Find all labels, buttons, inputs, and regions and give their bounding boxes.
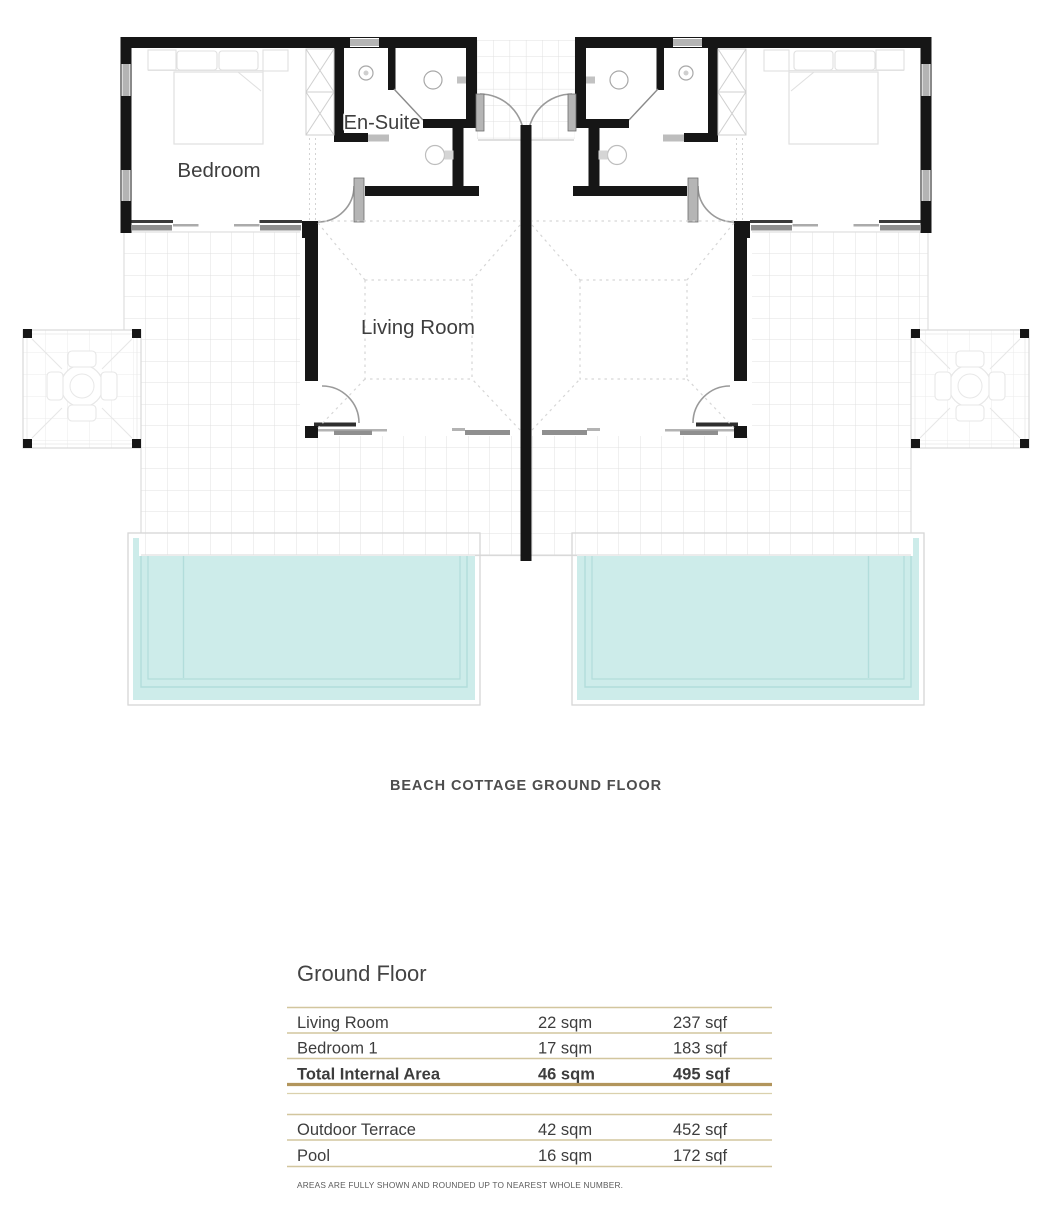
svg-text:Living Room: Living Room xyxy=(297,1014,389,1032)
svg-text:Ground Floor: Ground Floor xyxy=(297,961,427,986)
svg-text:46 sqm: 46 sqm xyxy=(538,1066,595,1084)
svg-text:BEACH COTTAGE GROUND FLOOR: BEACH COTTAGE GROUND FLOOR xyxy=(390,778,662,794)
svg-text:AREAS ARE FULLY SHOWN AND ROUN: AREAS ARE FULLY SHOWN AND ROUNDED UP TO … xyxy=(297,1180,623,1190)
svg-text:237 sqf: 237 sqf xyxy=(673,1014,728,1032)
svg-text:16 sqm: 16 sqm xyxy=(538,1147,592,1165)
svg-text:22 sqm: 22 sqm xyxy=(538,1014,592,1032)
svg-text:42 sqm: 42 sqm xyxy=(538,1121,592,1139)
svg-text:Outdoor Terrace: Outdoor Terrace xyxy=(297,1121,416,1139)
svg-text:17 sqm: 17 sqm xyxy=(538,1040,592,1058)
svg-text:Pool: Pool xyxy=(297,1147,330,1165)
svg-text:Total Internal Area: Total Internal Area xyxy=(297,1066,441,1084)
svg-text:183 sqf: 183 sqf xyxy=(673,1040,728,1058)
svg-text:Living Room: Living Room xyxy=(361,316,475,339)
svg-text:495 sqf: 495 sqf xyxy=(673,1066,730,1084)
svg-text:172 sqf: 172 sqf xyxy=(673,1147,728,1165)
svg-text:En-Suite: En-Suite xyxy=(344,112,421,134)
svg-text:Bedroom 1: Bedroom 1 xyxy=(297,1040,378,1058)
svg-text:Bedroom: Bedroom xyxy=(177,159,260,182)
svg-text:452 sqf: 452 sqf xyxy=(673,1121,728,1139)
